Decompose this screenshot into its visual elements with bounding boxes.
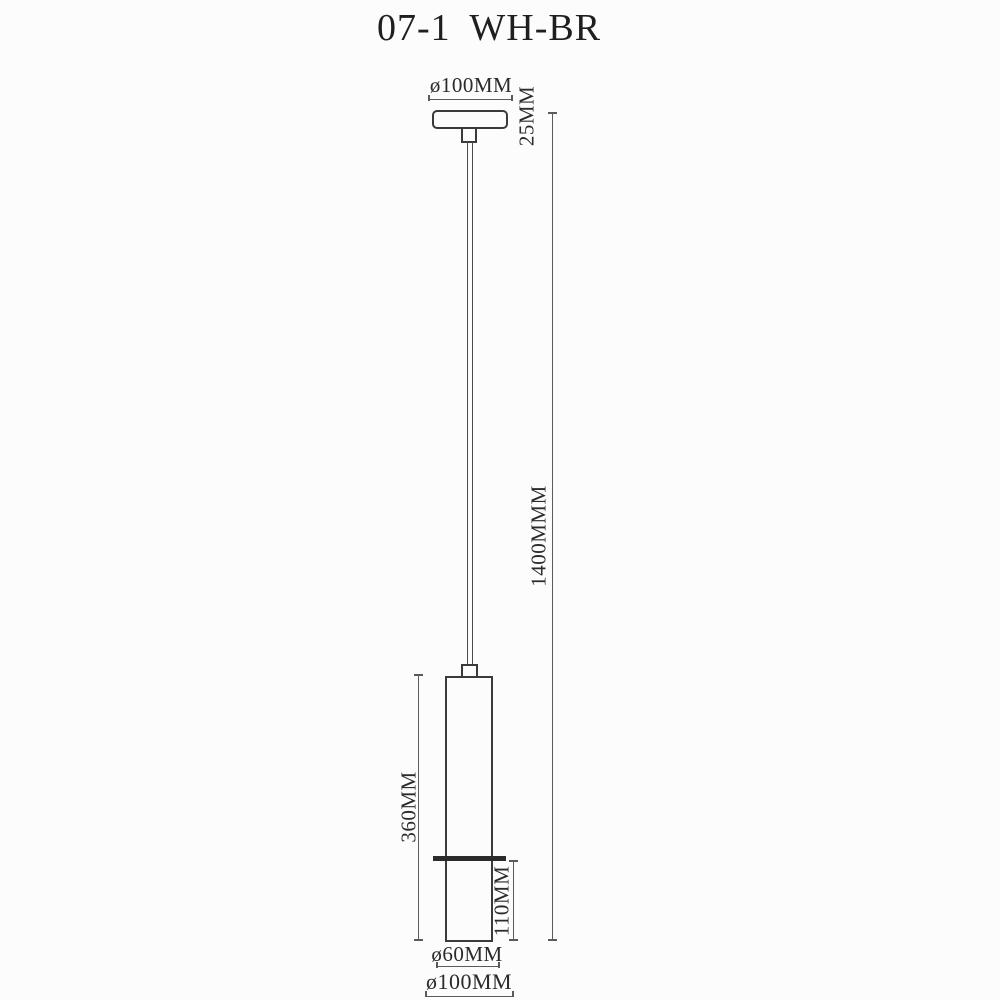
canopy-diameter-dim-line [429,99,513,100]
canopy-diameter-label: ø100MM [430,73,512,98]
dim-tick [511,95,513,101]
suspension-length-dim-line [552,113,553,941]
lower-section-height-label: 110MM [490,866,515,937]
canopy-height-label: 25MM [515,86,540,146]
drawing-title: 07-1 WH-BR [0,6,978,50]
dim-tick [414,939,423,941]
bottom-diameter-dim-line [426,996,514,997]
shade-diameter-dim-line [437,966,499,967]
dim-tick [509,939,518,941]
shade-diameter-label: ø60MM [431,942,502,967]
dim-tick [414,674,423,676]
bottom-diameter-label: ø100MM [426,969,512,995]
lamp-body [445,676,493,942]
ceiling-canopy [432,110,508,129]
dim-tick [436,962,438,968]
body-height-label: 360MM [397,771,422,842]
suspension-cord [467,142,473,666]
dim-tick [428,95,430,101]
suspension-length-label: 1400MMM [527,485,552,587]
dim-tick [509,860,518,862]
canopy-stem [461,127,477,143]
lamp-accent-band [433,856,506,861]
dim-tick [548,939,557,941]
dim-tick [425,991,427,997]
dim-tick [512,991,514,997]
dim-tick [548,112,557,114]
dim-tick [498,962,500,968]
technical-drawing-canvas: 07-1 WH-BR ø100MM 25MM 1400MMM 360MM 110… [0,0,1000,1000]
